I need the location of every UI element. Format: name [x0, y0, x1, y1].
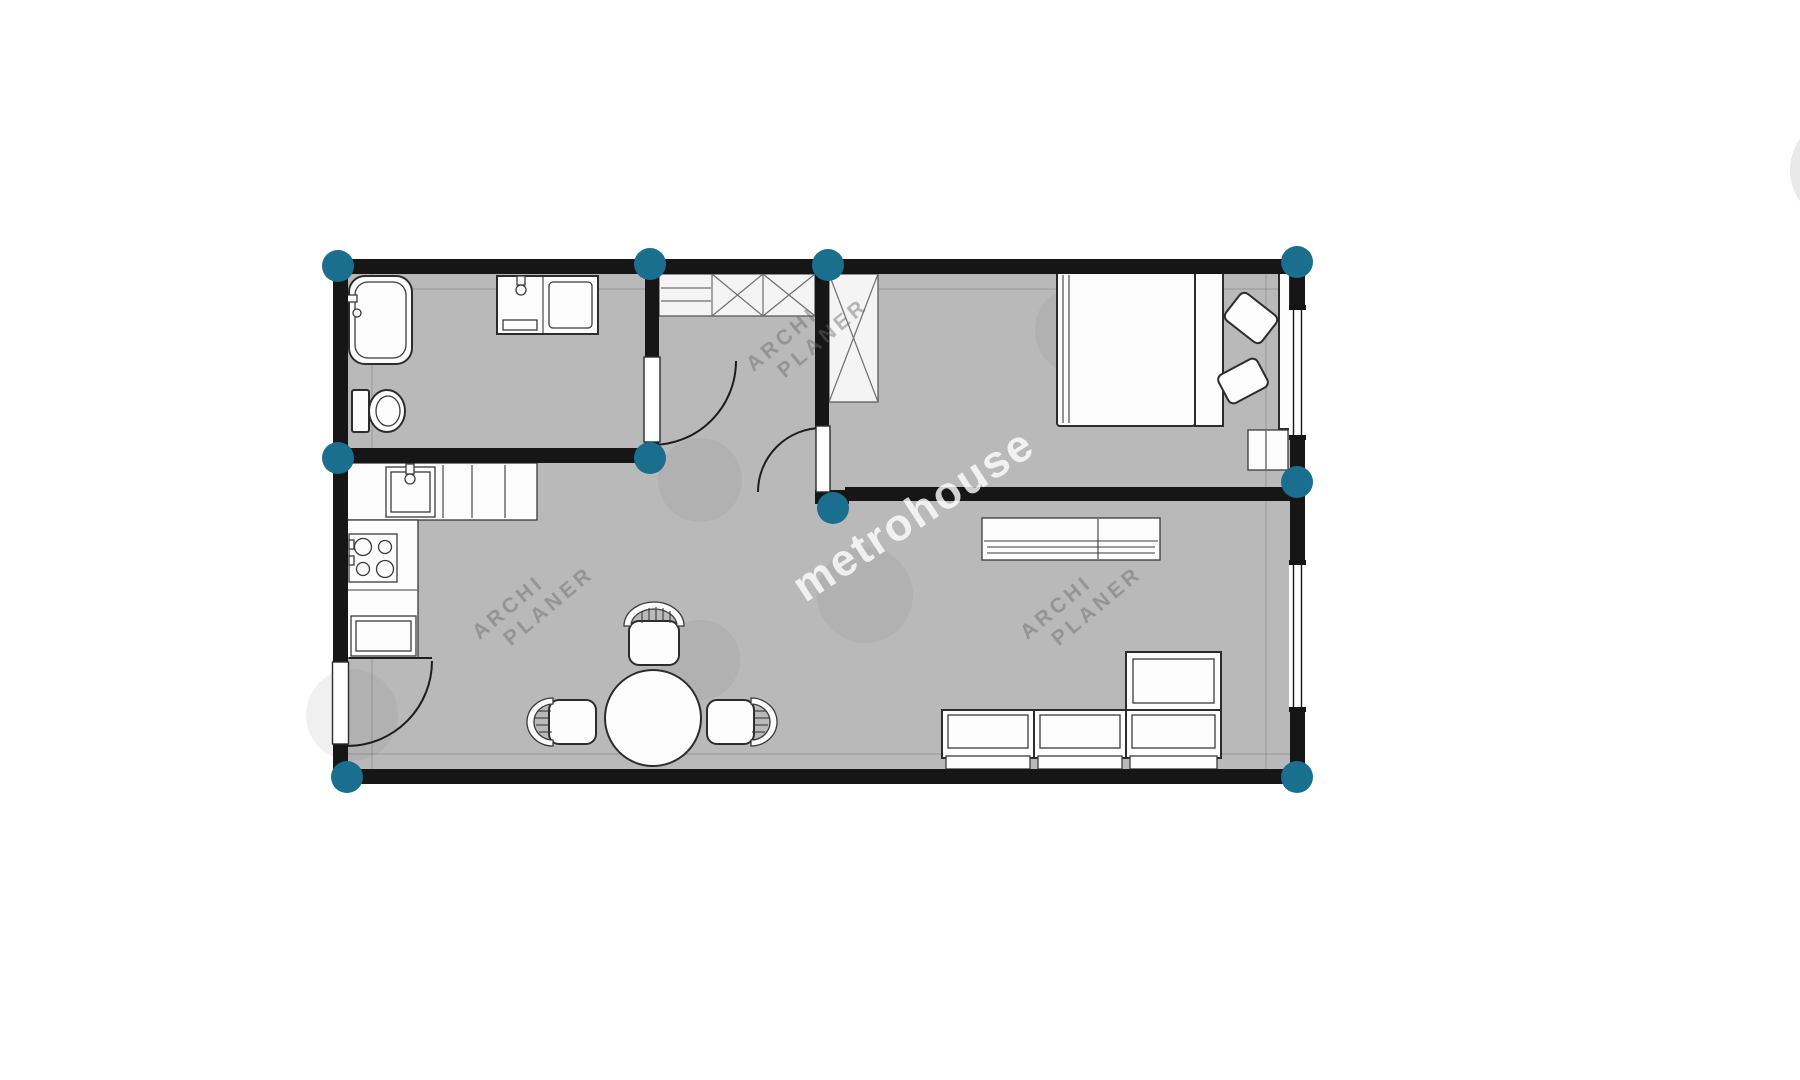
nightstand [1248, 430, 1288, 470]
fridge-cabinet [351, 616, 416, 656]
bedroom-door-leaf [816, 426, 830, 492]
plan-handle-4[interactable] [1281, 246, 1313, 278]
plan-handle-8[interactable] [1281, 466, 1313, 498]
window-bottom-right [1289, 560, 1306, 712]
floor-plan-canvas: metrohouse ARCHI PLANER ARCHI PLANER ARC… [0, 0, 1800, 1080]
plan-handle-3[interactable] [812, 249, 844, 281]
vanity-sink [497, 276, 598, 334]
tv-sideboard [982, 518, 1160, 560]
window-top-right [1289, 305, 1306, 440]
stove [349, 534, 397, 582]
bathtub [347, 276, 412, 364]
bedroom-wardrobe [829, 274, 878, 402]
plan-handle-7[interactable] [817, 492, 849, 524]
floor-plan-drawing [0, 0, 1800, 1080]
hall-wardrobe [659, 274, 815, 316]
plan-handle-1[interactable] [322, 250, 354, 282]
plan-handle-9[interactable] [331, 761, 363, 793]
entrance-door-opening [333, 662, 349, 744]
bathroom-door-opening [644, 357, 660, 442]
dining-table [605, 670, 701, 766]
plan-handle-6[interactable] [634, 442, 666, 474]
toilet [352, 390, 405, 432]
plan-handle-10[interactable] [1281, 761, 1313, 793]
plan-handle-5[interactable] [322, 442, 354, 474]
plan-handle-2[interactable] [634, 248, 666, 280]
